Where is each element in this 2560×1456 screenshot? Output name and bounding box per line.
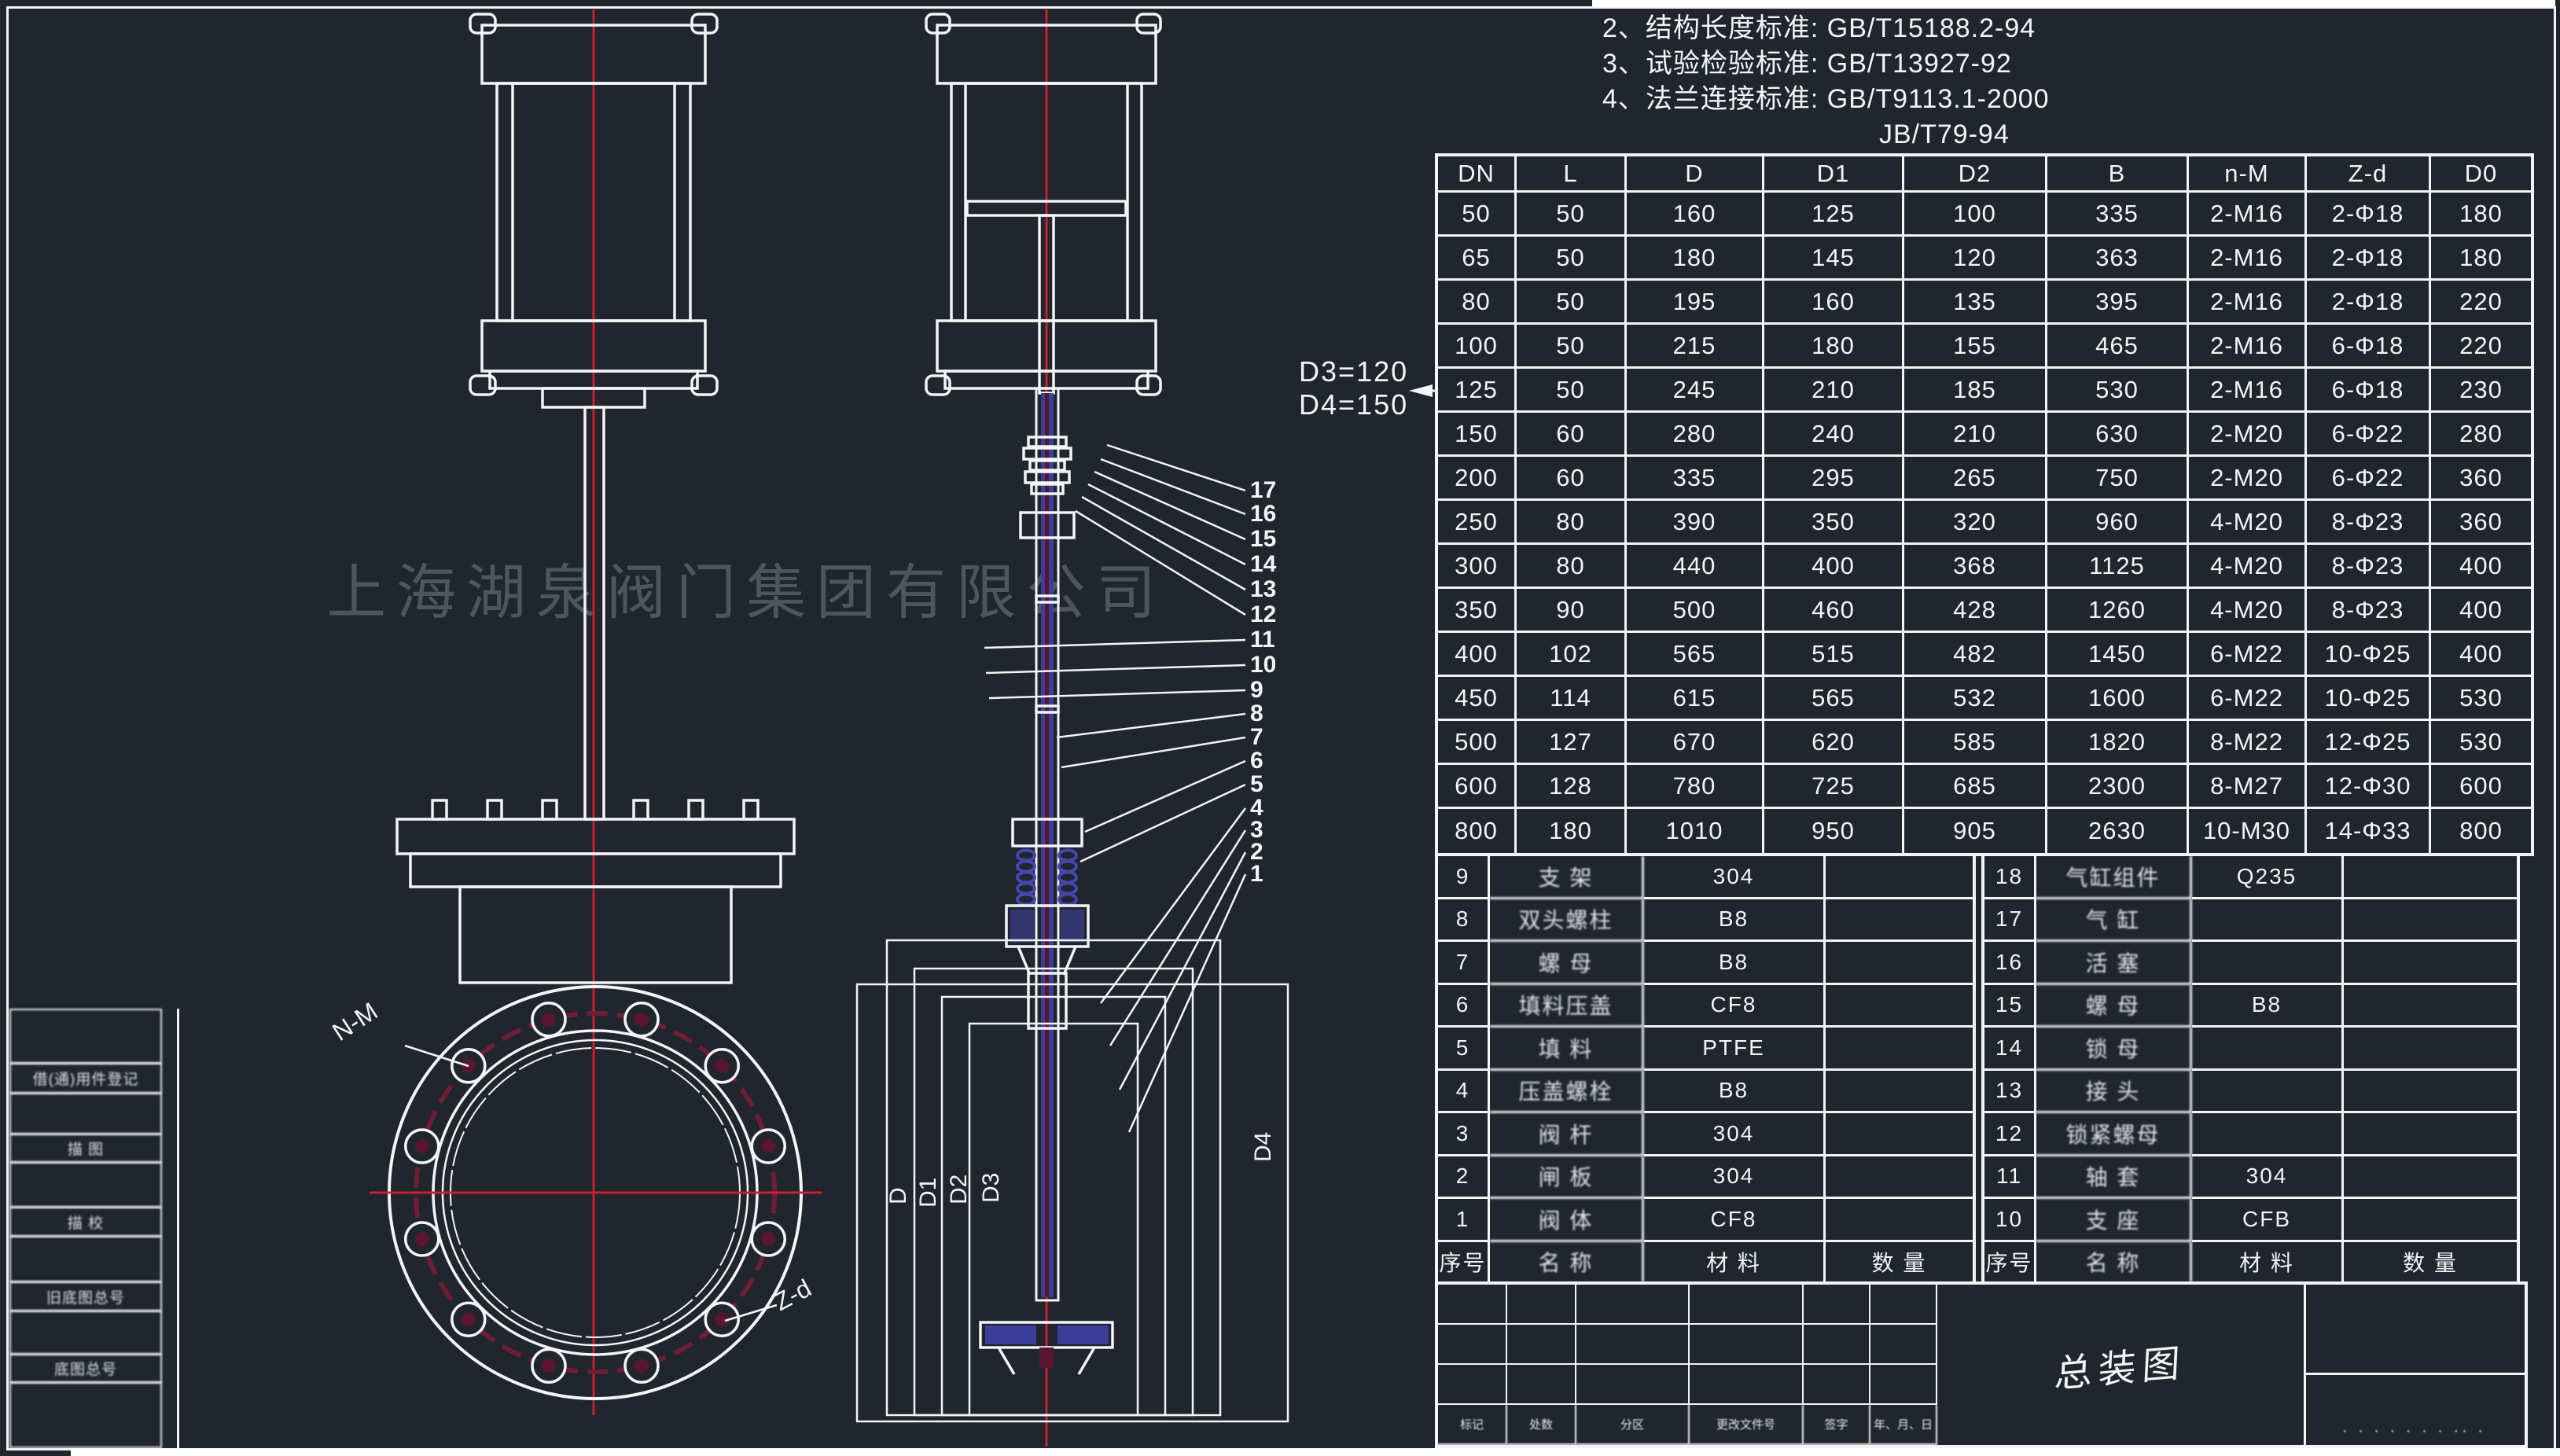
parts-cell: 10 — [1984, 1199, 2036, 1242]
revision-cell: 处数 — [1507, 1405, 1576, 1445]
callout-number: 16 — [1250, 501, 1276, 527]
dim-table-cell: 1450 — [2047, 633, 2189, 677]
parts-cell: 填 料 — [1490, 1028, 1644, 1071]
dim-table-cell: 350 — [1764, 501, 1904, 545]
parts-cell — [2192, 1113, 2344, 1156]
callout-number: 13 — [1250, 576, 1276, 602]
dim-table-cell: 615 — [1627, 677, 1764, 721]
callout-number: 8 — [1250, 700, 1263, 726]
parts-cell — [1826, 1028, 1973, 1071]
dim-table-cell: 400 — [2431, 545, 2531, 589]
dim-table-cell: 428 — [1904, 589, 2047, 633]
dim-table-cell: 400 — [2431, 633, 2531, 677]
dim-table-cell: 2-M20 — [2189, 457, 2307, 501]
dim-table-cell: 620 — [1764, 721, 1904, 765]
callout-number: 1 — [1250, 861, 1263, 887]
dim-table-cell: 1600 — [2047, 677, 2189, 721]
dim-table-cell: 210 — [1764, 369, 1904, 413]
parts-cell: 1 — [1438, 1199, 1490, 1242]
parts-cell: 304 — [1644, 856, 1826, 899]
parts-cell: 17 — [1984, 899, 2036, 943]
parts-cell: CFB — [2192, 1199, 2344, 1242]
dim-table-cell: 4-M20 — [2189, 545, 2307, 589]
dim-table-cell: 127 — [1517, 721, 1627, 765]
dim-table-cell: 1260 — [2047, 589, 2189, 633]
dim-table-cell: DN — [1438, 156, 1517, 193]
dim-table-cell: 2-Φ18 — [2307, 281, 2431, 325]
dim-table-cell: 482 — [1904, 633, 2047, 677]
parts-cell — [1826, 1071, 1973, 1114]
revision-cell — [1507, 1285, 1576, 1325]
parts-cell — [1826, 1113, 1973, 1156]
dim-table-cell: 230 — [2431, 369, 2531, 413]
callout-number: 14 — [1250, 551, 1277, 577]
dim-table-cell: 2-M20 — [2189, 413, 2307, 457]
parts-cell — [2344, 1113, 2517, 1156]
parts-cell — [2344, 1071, 2517, 1114]
revision-grid: 标记处数分区更改文件号签字年、月、日 — [1438, 1285, 1937, 1445]
parts-cell: 15 — [1984, 985, 2036, 1028]
dim-label-D2: D2 — [946, 1175, 972, 1204]
parts-cell: 16 — [1984, 942, 2036, 985]
parts-cell: 材 料 — [2192, 1242, 2344, 1281]
parts-list-right: 18气缸组件Q23517气 缸16活 塞15螺 母B814锁 母13接 头12锁… — [1981, 853, 2520, 1285]
parts-cell: 螺 母 — [1490, 942, 1644, 985]
revision-cell — [1870, 1325, 1937, 1365]
section-view: D D1 D2 D3 D4 1716151413121110987654321 — [857, 9, 1288, 1447]
dim-table-cell: 2-M16 — [2189, 369, 2307, 413]
parts-cell — [1826, 1156, 1973, 1200]
dim-table-cell: 90 — [1517, 589, 1627, 633]
revision-cell — [1870, 1365, 1937, 1405]
dim-table-cell: 335 — [1627, 457, 1764, 501]
parts-cell: 支 架 — [1490, 856, 1644, 899]
parts-cell: 锁紧螺母 — [2036, 1113, 2192, 1156]
callout-number: 11 — [1250, 627, 1275, 653]
dim-table-cell: 295 — [1764, 457, 1904, 501]
dim-table-cell: 215 — [1627, 325, 1764, 369]
parts-cell — [2344, 942, 2517, 985]
dim-table-cell: 10-Φ25 — [2307, 677, 2431, 721]
revision-cell: 分区 — [1576, 1405, 1690, 1445]
parts-cell — [2192, 1028, 2344, 1071]
dim-table-cell: 180 — [1764, 325, 1904, 369]
parts-cell — [2192, 942, 2344, 985]
parts-cell — [2344, 985, 2517, 1028]
dim-table-cell: 2-M16 — [2189, 237, 2307, 281]
parts-cell: 13 — [1984, 1071, 2036, 1114]
parts-cell: 304 — [1644, 1156, 1826, 1200]
dim-table-cell: 8-Φ23 — [2307, 545, 2431, 589]
dim-table-cell: 120 — [1904, 237, 2047, 281]
dim-table-cell: 6-M22 — [2189, 677, 2307, 721]
parts-cell: 6 — [1438, 985, 1490, 1028]
dim-table-cell: D1 — [1764, 156, 1904, 193]
dim-table-cell: L — [1517, 156, 1627, 193]
dim-table-cell: 2-M16 — [2189, 325, 2307, 369]
dim-table-cell: 1010 — [1627, 809, 1764, 853]
dim-table-cell: 220 — [2431, 281, 2531, 325]
dimension-table: DNLDD1D2Bn-MZ-dD050501601251003352-M162-… — [1435, 153, 2534, 856]
dim-table-cell: 6-Φ18 — [2307, 369, 2431, 413]
revision-cell — [1870, 1285, 1937, 1325]
parts-cell: 活 塞 — [2036, 942, 2192, 985]
dim-table-cell: 950 — [1764, 809, 1904, 853]
dim-table-cell: 6-Φ22 — [2307, 413, 2431, 457]
dim-table-cell: 1125 — [2047, 545, 2189, 589]
dim-table-cell: 145 — [1764, 237, 1904, 281]
parts-cell: 7 — [1438, 942, 1490, 985]
parts-cell: 数 量 — [2344, 1242, 2517, 1281]
revision-cell — [1804, 1325, 1870, 1365]
dim-table-cell: 6-Φ22 — [2307, 457, 2431, 501]
parts-cell: 数 量 — [1826, 1242, 1973, 1281]
parts-cell: CF8 — [1644, 1199, 1826, 1242]
dim-table-cell: 125 — [1764, 193, 1904, 237]
revision-cell — [1690, 1365, 1804, 1405]
parts-cell: 闸 板 — [1490, 1156, 1644, 1200]
dim-table-cell: 395 — [2047, 281, 2189, 325]
dim-table-cell: 500 — [1438, 721, 1517, 765]
dim-label-D: D — [885, 1187, 911, 1204]
dim-table-cell: D0 — [2431, 156, 2531, 193]
dim-table-cell: 50 — [1438, 193, 1517, 237]
parts-cell: PTFE — [1644, 1028, 1826, 1071]
callout-number: 9 — [1250, 677, 1263, 703]
dim-table-cell: 185 — [1904, 369, 2047, 413]
dim-table-cell: 600 — [2431, 765, 2531, 809]
callout-number: 6 — [1250, 748, 1263, 774]
revision-cell — [1438, 1285, 1507, 1325]
parts-cell: 304 — [1644, 1113, 1826, 1156]
dim-table-cell: 280 — [1627, 413, 1764, 457]
dim-table-cell: 2-Φ18 — [2307, 193, 2431, 237]
dim-table-cell: 160 — [1627, 193, 1764, 237]
dim-table-cell: 368 — [1904, 545, 2047, 589]
dim-table-cell: 100 — [1438, 325, 1517, 369]
parts-cell — [1826, 985, 1973, 1028]
parts-cell: 名 称 — [1490, 1242, 1644, 1281]
dim-table-cell: 12-Φ25 — [2307, 721, 2431, 765]
revision-cell — [1507, 1325, 1576, 1365]
dim-table-cell: 128 — [1517, 765, 1627, 809]
parts-cell — [2192, 1071, 2344, 1114]
dim-table-cell: 725 — [1764, 765, 1904, 809]
dim-table-cell: 80 — [1438, 281, 1517, 325]
dim-table-cell: 265 — [1904, 457, 2047, 501]
parts-list-left: 9支 架3048双头螺柱B87螺 母B86填料压盖CF85填 料PTFE4压盖螺… — [1435, 853, 1976, 1285]
callout-number: 5 — [1250, 771, 1263, 797]
dim-table-cell: 65 — [1438, 237, 1517, 281]
dim-table-cell: 780 — [1627, 765, 1764, 809]
revision-cell — [1690, 1325, 1804, 1365]
dim-table-cell: 360 — [2431, 457, 2531, 501]
dim-table-cell: 800 — [2431, 809, 2531, 853]
parts-cell — [2344, 1156, 2517, 1200]
parts-cell: 名 称 — [2036, 1242, 2192, 1281]
dim-table-cell: 360 — [2431, 501, 2531, 545]
parts-cell: 3 — [1438, 1113, 1490, 1156]
parts-cell: 14 — [1984, 1028, 2036, 1071]
n-m-label: N-M — [327, 997, 382, 1046]
parts-cell: 气 缸 — [2036, 899, 2192, 943]
revision-cell: 签字 — [1804, 1405, 1870, 1445]
parts-cell — [1826, 856, 1973, 899]
dim-table-cell: 180 — [2431, 237, 2531, 281]
dim-table-cell: 670 — [1627, 721, 1764, 765]
dim-label-D4: D4 — [1250, 1132, 1276, 1162]
parts-cell — [2192, 899, 2344, 943]
dim-table-cell: 8-Φ23 — [2307, 589, 2431, 633]
callout-number: 10 — [1250, 652, 1276, 678]
dim-table-cell: 8-Φ23 — [2307, 501, 2431, 545]
dim-table-cell: 6-Φ18 — [2307, 325, 2431, 369]
parts-cell: 11 — [1984, 1156, 2036, 1200]
dim-table-cell: 100 — [1904, 193, 2047, 237]
parts-cell: 8 — [1438, 899, 1490, 943]
dim-table-cell: 80 — [1517, 545, 1627, 589]
parts-cell: 阀 体 — [1490, 1199, 1644, 1242]
dim-table-cell: 400 — [1438, 633, 1517, 677]
dim-table-cell: 6-M22 — [2189, 633, 2307, 677]
parts-cell — [2344, 1028, 2517, 1071]
dim-table-cell: 2300 — [2047, 765, 2189, 809]
title-block-right-top — [2304, 1285, 2525, 1375]
drawing-title: 总装图 — [2053, 1331, 2187, 1398]
parts-cell: 2 — [1438, 1156, 1490, 1200]
dim-table-cell: 135 — [1904, 281, 2047, 325]
dim-table-cell: 60 — [1517, 413, 1627, 457]
parts-cell: 5 — [1438, 1028, 1490, 1071]
parts-cell — [1826, 899, 1973, 943]
dim-table-cell: 630 — [2047, 413, 2189, 457]
dim-table-cell: 565 — [1627, 633, 1764, 677]
dim-table-cell: 180 — [1517, 809, 1627, 853]
dim-table-cell: 600 — [1438, 765, 1517, 809]
callout-number: 17 — [1250, 477, 1276, 503]
dim-table-cell: 155 — [1904, 325, 2047, 369]
title-block: 标记处数分区更改文件号签字年、月、日 总装图 · · · · · · · ·· … — [1435, 1281, 2528, 1448]
dim-table-cell: 240 — [1764, 413, 1904, 457]
revision-cell — [1804, 1365, 1870, 1405]
parts-cell: 气缸组件 — [2036, 856, 2192, 899]
parts-cell: 压盖螺栓 — [1490, 1071, 1644, 1114]
dim-table-cell: 250 — [1438, 501, 1517, 545]
parts-cell: 锁 母 — [2036, 1028, 2192, 1071]
dim-table-cell: 195 — [1627, 281, 1764, 325]
dim-table-cell: 960 — [2047, 501, 2189, 545]
title-block-scale-row: · · · · · · · ·· · — [2304, 1373, 2525, 1445]
dim-table-cell: 125 — [1438, 369, 1517, 413]
revision-cell — [1438, 1325, 1507, 1365]
dim-table-cell: 532 — [1904, 677, 2047, 721]
dim-table-cell: 320 — [1904, 501, 2047, 545]
dim-table-cell: 245 — [1627, 369, 1764, 413]
dim-table-cell: 350 — [1438, 589, 1517, 633]
front-view: N-M Z-d — [327, 9, 822, 1415]
revision-cell — [1576, 1365, 1690, 1405]
parts-cell — [2344, 856, 2517, 899]
dim-table-cell: 8-M27 — [2189, 765, 2307, 809]
dim-table-cell: 400 — [1764, 545, 1904, 589]
drawing-title-cell: 总装图 — [1937, 1285, 2306, 1445]
parts-cell: B8 — [2192, 985, 2344, 1028]
parts-cell: 阀 杆 — [1490, 1113, 1644, 1156]
dim-table-cell: 750 — [2047, 457, 2189, 501]
dim-table-cell: 10-M30 — [2189, 809, 2307, 853]
revision-cell — [1507, 1365, 1576, 1405]
dim-table-cell: 565 — [1764, 677, 1904, 721]
revision-cell: 标记 — [1438, 1405, 1507, 1445]
dim-table-cell: 585 — [1904, 721, 2047, 765]
dim-table-cell: 8-M22 — [2189, 721, 2307, 765]
dim-table-cell: 60 — [1517, 457, 1627, 501]
parts-cell — [2344, 899, 2517, 943]
parts-cell: 4 — [1438, 1071, 1490, 1114]
dim-table-cell: 4-M20 — [2189, 501, 2307, 545]
parts-cell: 304 — [2192, 1156, 2344, 1200]
cad-drawing-sheet: 上海湖泉阀门集团有限公司 2、结构长度标准: GB/T15188.2-943、试… — [0, 0, 2560, 1456]
parts-cell: Q235 — [2192, 856, 2344, 899]
parts-cell — [1826, 1199, 1973, 1242]
revision-cell: 年、月、日 — [1870, 1405, 1937, 1445]
dim-table-cell: 4-M20 — [2189, 589, 2307, 633]
dim-table-cell: 10-Φ25 — [2307, 633, 2431, 677]
dim-table-cell: 685 — [1904, 765, 2047, 809]
dim-table-cell: 160 — [1764, 281, 1904, 325]
dim-table-cell: 2-M16 — [2189, 193, 2307, 237]
dim-table-cell: 200 — [1438, 457, 1517, 501]
dim-table-cell: 400 — [2431, 589, 2531, 633]
parts-cell: 9 — [1438, 856, 1490, 899]
parts-cell: 12 — [1984, 1113, 2036, 1156]
parts-cell: 序号 — [1984, 1242, 2036, 1281]
dim-table-cell: D — [1627, 156, 1764, 193]
callout-number: 15 — [1250, 526, 1276, 552]
callout-number: 7 — [1250, 724, 1263, 750]
dim-table-cell: 210 — [1904, 413, 2047, 457]
dim-table-cell: 2630 — [2047, 809, 2189, 853]
dim-table-cell: 150 — [1438, 413, 1517, 457]
revision-cell — [1690, 1285, 1804, 1325]
dim-table-cell: 530 — [2431, 677, 2531, 721]
dim-label-D3: D3 — [978, 1173, 1004, 1203]
parts-cell: B8 — [1644, 942, 1826, 985]
parts-cell: B8 — [1644, 1071, 1826, 1114]
dim-table-cell: 515 — [1764, 633, 1904, 677]
dim-table-cell: 465 — [2047, 325, 2189, 369]
dim-table-cell: 390 — [1627, 501, 1764, 545]
dim-table-cell: 180 — [2431, 193, 2531, 237]
dim-table-cell: 450 — [1438, 677, 1517, 721]
dim-table-cell: 102 — [1517, 633, 1627, 677]
parts-cell: 螺 母 — [2036, 985, 2192, 1028]
dim-table-cell: 500 — [1627, 589, 1764, 633]
dim-table-cell: 280 — [2431, 413, 2531, 457]
dim-table-cell: Z-d — [2307, 156, 2431, 193]
parts-cell: 序号 — [1438, 1242, 1490, 1281]
parts-cell: 填料压盖 — [1490, 985, 1644, 1028]
dim-table-cell: 300 — [1438, 545, 1517, 589]
dim-table-cell: 2-M16 — [2189, 281, 2307, 325]
dim-table-cell: 530 — [2047, 369, 2189, 413]
dim-table-cell: 363 — [2047, 237, 2189, 281]
dim-table-cell: 530 — [2431, 721, 2531, 765]
dim-table-cell: 80 — [1517, 501, 1627, 545]
revision-cell — [1576, 1285, 1690, 1325]
dim-table-cell: 50 — [1517, 325, 1627, 369]
dim-table-cell: 800 — [1438, 809, 1517, 853]
parts-cell: 轴 套 — [2036, 1156, 2192, 1200]
parts-cell — [2344, 1199, 2517, 1242]
dim-table-cell: 1820 — [2047, 721, 2189, 765]
dim-table-cell: 50 — [1517, 369, 1627, 413]
parts-cell: 双头螺柱 — [1490, 899, 1644, 943]
parts-cell — [1826, 942, 1973, 985]
callout-number: 12 — [1250, 601, 1276, 627]
dim-table-cell: 12-Φ30 — [2307, 765, 2431, 809]
dim-table-cell: 2-Φ18 — [2307, 237, 2431, 281]
dim-table-cell: 335 — [2047, 193, 2189, 237]
dim-table-cell: B — [2047, 156, 2189, 193]
parts-cell: 材 料 — [1644, 1242, 1826, 1281]
dim-table-cell: 50 — [1517, 193, 1627, 237]
diameter-dim-labels: D D1 D2 D3 D4 — [885, 1132, 1276, 1208]
dim-table-cell: D2 — [1904, 156, 2047, 193]
dim-table-cell: 905 — [1904, 809, 2047, 853]
dim-table-cell: 50 — [1517, 237, 1627, 281]
parts-cell: B8 — [1644, 899, 1826, 943]
revision-cell — [1576, 1325, 1690, 1365]
parts-cell: 接 头 — [2036, 1071, 2192, 1114]
revision-cell — [1804, 1285, 1870, 1325]
dim-table-cell: 460 — [1764, 589, 1904, 633]
parts-cell: 18 — [1984, 856, 2036, 899]
parts-cell: 支 座 — [2036, 1199, 2192, 1242]
dim-table-cell: 180 — [1627, 237, 1764, 281]
dim-table-cell: 14-Φ33 — [2307, 809, 2431, 853]
revision-cell: 更改文件号 — [1690, 1405, 1804, 1445]
dim-table-cell: 440 — [1627, 545, 1764, 589]
z-d-label: Z-d — [769, 1274, 815, 1316]
dim-table-cell: 50 — [1517, 281, 1627, 325]
dim-table-cell: n-M — [2189, 156, 2307, 193]
dim-label-D1: D1 — [915, 1178, 941, 1208]
dim-table-cell: 114 — [1517, 677, 1627, 721]
revision-cell — [1438, 1365, 1507, 1405]
dim-table-cell: 220 — [2431, 325, 2531, 369]
parts-cell: CF8 — [1644, 985, 1826, 1028]
